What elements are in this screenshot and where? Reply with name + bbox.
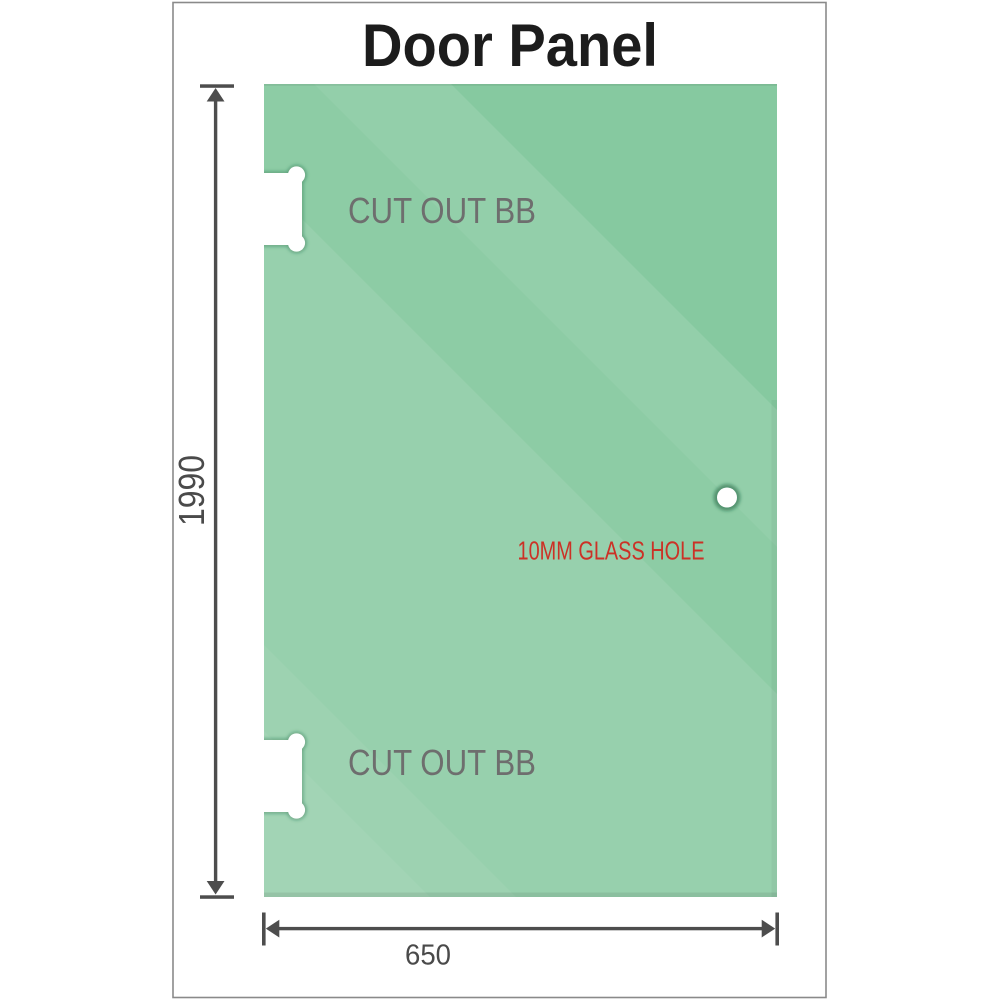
svg-text:Door Panel: Door Panel <box>362 12 658 79</box>
svg-text:CUT OUT BB: CUT OUT BB <box>348 742 536 783</box>
svg-text:CUT OUT BB: CUT OUT BB <box>348 190 536 231</box>
svg-text:650: 650 <box>405 940 451 972</box>
svg-text:10MM GLASS HOLE: 10MM GLASS HOLE <box>518 536 705 566</box>
svg-text:1990: 1990 <box>171 455 212 526</box>
